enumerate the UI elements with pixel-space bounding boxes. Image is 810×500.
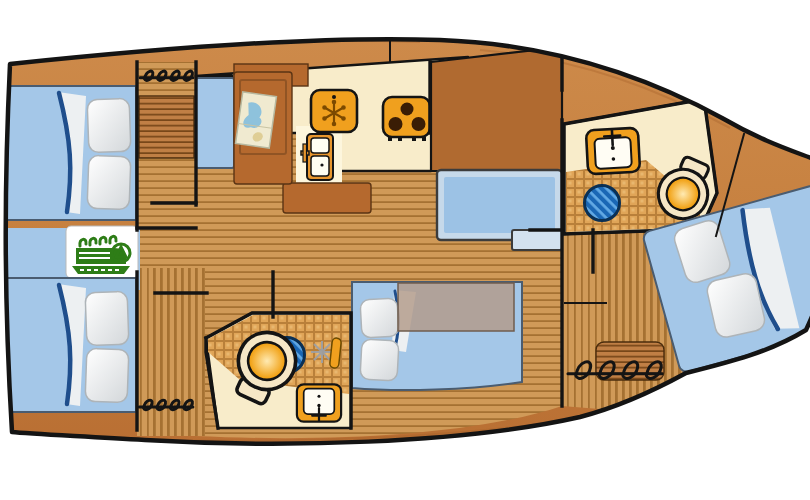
pillow [360,298,399,338]
nav-seat [196,78,234,168]
seat-step [512,230,562,250]
companionway-steps-icon [139,96,194,158]
pillow [87,98,131,152]
boat-layout-diagram [0,0,810,500]
fwd-head [564,99,720,234]
saloon-settee [352,282,522,390]
pillow [360,339,399,381]
engine-icon [66,226,138,278]
stove-icon [383,97,430,141]
pillow [85,348,129,402]
galley-island [283,183,371,213]
saloon-table [398,283,514,331]
shower-drain-icon [585,186,620,221]
sailboat-deck-plan [0,0,810,500]
aft-head [206,313,351,428]
aft-cabin-starboard [2,278,136,412]
pillow [85,291,129,345]
nav-station [196,72,292,184]
fridge-freezer-icon [311,90,357,132]
sink-icon [297,384,341,421]
fwd-seat [437,170,562,250]
pillow [87,155,131,209]
chart-map-icon [236,92,277,148]
galley-fwd-cabinet [431,47,562,171]
aft-cabin-port [2,86,136,220]
sink-icon [586,128,640,175]
